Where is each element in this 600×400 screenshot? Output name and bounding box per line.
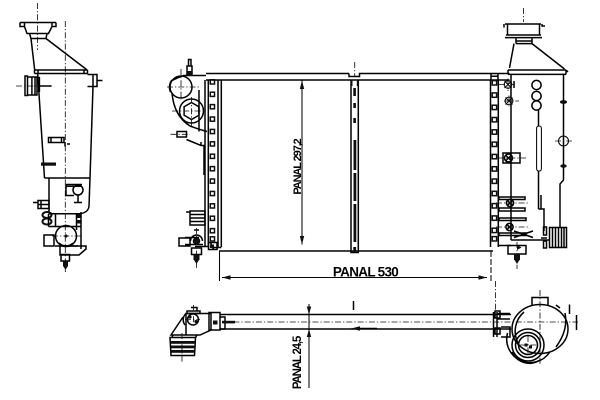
svg-text:PANAL 24,5: PANAL 24,5	[292, 335, 304, 389]
svg-text:PANAL 297,2: PANAL 297,2	[292, 138, 304, 194]
svg-text:PANAL 530: PANAL 530	[333, 265, 398, 280]
